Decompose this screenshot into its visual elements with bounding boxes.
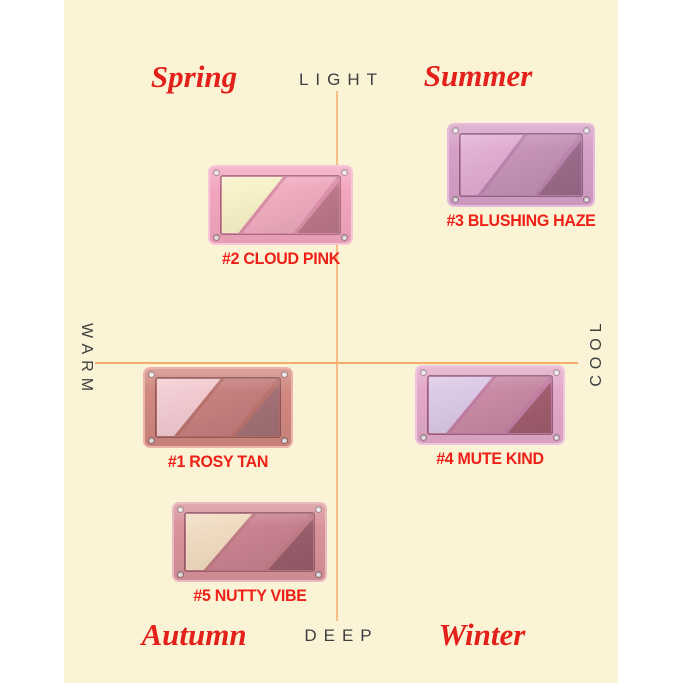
palette-rosy-tan: #1 ROSY TAN	[143, 367, 293, 448]
quadrant-label-spring: Spring	[151, 59, 237, 95]
screw-icon	[342, 170, 347, 175]
quadrant-label-summer: Summer	[424, 58, 533, 94]
palette-recess	[427, 375, 553, 435]
screw-icon	[282, 372, 287, 377]
screw-icon	[178, 572, 183, 577]
palette-nutty-vibe: #5 NUTTY VIBE	[172, 502, 327, 582]
cream-panel	[64, 0, 618, 683]
quadrant-label-winter: Winter	[439, 617, 526, 653]
axis-label-cool: COOL	[588, 317, 606, 392]
screw-icon	[453, 197, 458, 202]
screw-icon	[282, 438, 287, 443]
palette-name-label: #2 CLOUD PINK	[222, 249, 340, 269]
palette-frame	[449, 125, 593, 205]
axis-label-light: LIGHT	[292, 70, 384, 90]
palette-blushing-haze: #3 BLUSHING HAZE	[447, 123, 595, 207]
palette-mute-kind: #4 MUTE KIND	[415, 365, 565, 445]
screw-icon	[316, 572, 321, 577]
horizontal-axis-line	[95, 362, 578, 364]
palette-recess	[155, 377, 281, 438]
palette-cloud-pink: #2 CLOUD PINK	[208, 165, 353, 245]
palette-name-label: #5 NUTTY VIBE	[193, 586, 306, 606]
palette-frame	[145, 369, 291, 446]
palette-name-label: #4 MUTE KIND	[436, 449, 544, 469]
screw-icon	[149, 372, 154, 377]
palette-recess	[184, 512, 315, 572]
palette-recess	[220, 175, 341, 235]
screw-icon	[316, 507, 321, 512]
palette-name-label: #3 BLUSHING HAZE	[446, 211, 595, 231]
axis-label-deep: DEEP	[297, 626, 378, 646]
screw-icon	[214, 170, 219, 175]
palette-recess	[459, 133, 583, 197]
screw-icon	[214, 235, 219, 240]
palette-frame	[174, 504, 325, 580]
palette-frame	[417, 367, 563, 443]
screw-icon	[453, 128, 458, 133]
screw-icon	[554, 370, 559, 375]
tone-map-poster: LIGHT DEEP WARM COOL Spring Summer Autum…	[0, 0, 683, 683]
screw-icon	[554, 435, 559, 440]
screw-icon	[149, 438, 154, 443]
axis-label-warm: WARM	[77, 317, 95, 397]
palette-frame	[210, 167, 351, 243]
screw-icon	[421, 370, 426, 375]
screw-icon	[342, 235, 347, 240]
screw-icon	[584, 197, 589, 202]
screw-icon	[178, 507, 183, 512]
screw-icon	[421, 435, 426, 440]
palette-name-label: #1 ROSY TAN	[168, 452, 268, 472]
quadrant-label-autumn: Autumn	[141, 617, 246, 653]
screw-icon	[584, 128, 589, 133]
